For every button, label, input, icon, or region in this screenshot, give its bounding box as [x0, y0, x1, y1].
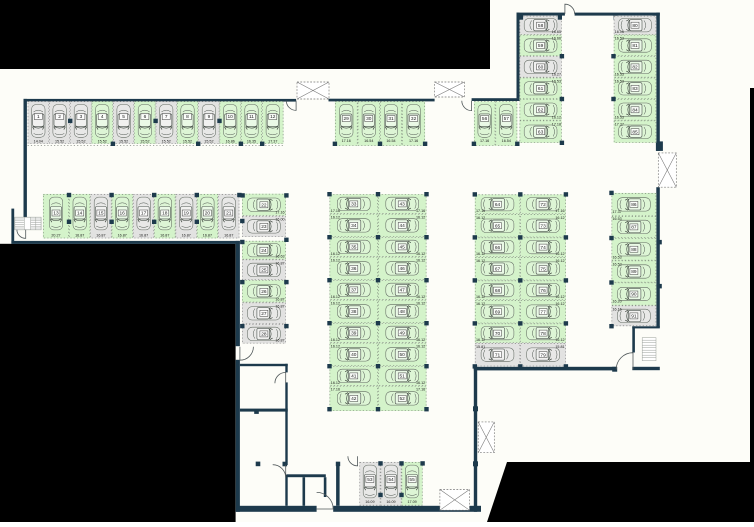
svg-text:53: 53: [367, 477, 373, 483]
svg-text:87: 87: [631, 225, 637, 231]
svg-text:16.87: 16.87: [96, 234, 105, 238]
svg-text:16.12: 16.12: [331, 302, 340, 306]
svg-text:17.18: 17.18: [552, 123, 561, 127]
svg-text:16.53: 16.53: [615, 73, 624, 77]
svg-text:70: 70: [495, 331, 501, 337]
svg-text:19: 19: [184, 211, 190, 217]
svg-text:20: 20: [205, 211, 211, 217]
svg-text:82: 82: [632, 65, 638, 71]
svg-text:35: 35: [351, 245, 357, 251]
svg-text:42: 42: [351, 396, 357, 402]
svg-text:16.35: 16.35: [247, 140, 256, 144]
svg-text:17.16: 17.16: [409, 139, 418, 143]
svg-text:10: 10: [228, 114, 234, 120]
svg-text:16: 16: [120, 211, 126, 217]
svg-text:17.16: 17.16: [476, 209, 485, 213]
svg-text:16.12: 16.12: [555, 216, 564, 220]
svg-text:16.87: 16.87: [224, 234, 233, 238]
svg-text:15.52: 15.52: [183, 140, 192, 144]
svg-text:16.66: 16.66: [552, 37, 561, 41]
svg-text:56: 56: [482, 116, 488, 122]
svg-text:16.63: 16.63: [275, 254, 284, 258]
svg-text:13: 13: [53, 211, 59, 217]
svg-text:39: 39: [351, 331, 357, 337]
svg-text:27: 27: [261, 311, 267, 317]
svg-text:16.12: 16.12: [555, 338, 564, 342]
svg-text:84: 84: [632, 108, 638, 114]
svg-text:16.12: 16.12: [416, 252, 425, 256]
svg-text:9: 9: [208, 114, 211, 120]
svg-text:32: 32: [411, 116, 417, 122]
svg-text:15.52: 15.52: [119, 140, 128, 144]
svg-text:16.53: 16.53: [615, 116, 624, 120]
svg-text:23: 23: [261, 224, 267, 230]
svg-text:65: 65: [495, 223, 501, 229]
svg-text:5: 5: [122, 114, 125, 120]
svg-text:83: 83: [632, 86, 638, 92]
svg-text:17.16: 17.16: [331, 388, 340, 392]
svg-text:68: 68: [495, 288, 501, 294]
svg-text:1: 1: [37, 114, 40, 120]
svg-text:48: 48: [400, 309, 406, 315]
svg-text:16.54: 16.54: [386, 139, 395, 143]
svg-text:16.53: 16.53: [615, 37, 624, 41]
svg-text:58: 58: [538, 23, 544, 29]
svg-text:28: 28: [261, 332, 267, 338]
svg-text:24: 24: [261, 248, 267, 254]
svg-text:16.12: 16.12: [416, 345, 425, 349]
svg-text:61: 61: [538, 86, 544, 92]
svg-text:16.87: 16.87: [160, 234, 169, 238]
svg-text:59: 59: [538, 43, 544, 49]
svg-text:16.00: 16.00: [275, 218, 284, 222]
svg-text:14: 14: [77, 211, 83, 217]
svg-text:16.53: 16.53: [613, 217, 622, 221]
svg-text:16.12: 16.12: [555, 302, 564, 306]
svg-text:17.37: 17.37: [268, 140, 277, 144]
svg-text:15.52: 15.52: [76, 140, 85, 144]
svg-text:16.12: 16.12: [416, 381, 425, 385]
svg-text:16.12: 16.12: [476, 216, 485, 220]
svg-text:16.27: 16.27: [552, 73, 561, 77]
svg-text:16.12: 16.12: [331, 259, 340, 263]
svg-text:16.09: 16.09: [365, 500, 374, 504]
svg-text:81: 81: [632, 43, 638, 49]
svg-text:62: 62: [538, 108, 544, 114]
svg-text:17.16: 17.16: [275, 211, 284, 215]
svg-text:16.12: 16.12: [416, 216, 425, 220]
svg-text:16.65: 16.65: [552, 30, 561, 34]
svg-text:17.16: 17.16: [480, 139, 489, 143]
svg-text:51: 51: [400, 374, 406, 380]
svg-text:16.53: 16.53: [613, 262, 622, 266]
svg-text:90: 90: [631, 292, 637, 298]
svg-text:15.81: 15.81: [555, 345, 564, 349]
svg-text:43: 43: [400, 202, 406, 208]
svg-text:74: 74: [540, 245, 546, 251]
svg-text:16.87: 16.87: [275, 262, 284, 266]
svg-text:6: 6: [144, 114, 147, 120]
svg-text:16.87: 16.87: [182, 234, 191, 238]
svg-text:66: 66: [495, 245, 501, 251]
svg-text:52: 52: [400, 396, 406, 402]
svg-text:4: 4: [101, 114, 104, 120]
svg-text:3: 3: [80, 114, 83, 120]
svg-text:16.87: 16.87: [275, 304, 284, 308]
svg-text:16.86: 16.86: [226, 140, 235, 144]
svg-text:15.52: 15.52: [204, 140, 213, 144]
svg-text:16.12: 16.12: [416, 259, 425, 263]
svg-text:16.12: 16.12: [555, 295, 564, 299]
svg-text:2: 2: [58, 114, 61, 120]
svg-text:21: 21: [226, 211, 232, 217]
svg-text:7: 7: [165, 114, 168, 120]
svg-text:17.09: 17.09: [407, 500, 416, 504]
svg-text:16.12: 16.12: [331, 338, 340, 342]
svg-text:16.12: 16.12: [331, 216, 340, 220]
svg-text:40: 40: [351, 352, 357, 358]
svg-text:16.12: 16.12: [476, 259, 485, 263]
svg-text:60: 60: [538, 65, 544, 71]
svg-text:16.12: 16.12: [331, 252, 340, 256]
svg-text:69: 69: [495, 309, 501, 315]
svg-text:73: 73: [540, 223, 546, 229]
svg-text:16.87: 16.87: [139, 234, 148, 238]
svg-text:11: 11: [249, 114, 254, 120]
svg-text:16.12: 16.12: [476, 338, 485, 342]
svg-text:16.87: 16.87: [118, 234, 127, 238]
svg-text:17.16: 17.16: [416, 388, 425, 392]
svg-text:78: 78: [540, 331, 546, 337]
svg-text:33: 33: [351, 202, 357, 208]
svg-text:63: 63: [538, 129, 544, 135]
svg-text:15: 15: [98, 211, 104, 217]
svg-text:72: 72: [540, 202, 546, 208]
svg-text:16.12: 16.12: [476, 295, 485, 299]
svg-text:16.20: 16.20: [613, 300, 622, 304]
svg-text:64: 64: [495, 202, 501, 208]
svg-text:76: 76: [540, 288, 546, 294]
svg-text:16.53: 16.53: [613, 256, 622, 260]
svg-text:16.12: 16.12: [555, 252, 564, 256]
svg-text:16.53: 16.53: [552, 80, 561, 84]
svg-text:25: 25: [261, 268, 267, 274]
svg-text:79: 79: [540, 352, 546, 358]
svg-text:16.09: 16.09: [386, 500, 395, 504]
svg-text:16.87: 16.87: [275, 297, 284, 301]
svg-text:16.12: 16.12: [552, 116, 561, 120]
svg-text:46: 46: [400, 266, 406, 272]
svg-text:16.87: 16.87: [203, 234, 212, 238]
svg-text:26: 26: [261, 289, 267, 295]
svg-text:12: 12: [270, 114, 276, 120]
svg-text:67: 67: [495, 266, 501, 272]
svg-text:80: 80: [632, 23, 638, 29]
svg-text:36: 36: [351, 266, 357, 272]
svg-text:16.12: 16.12: [331, 381, 340, 385]
svg-text:16.12: 16.12: [555, 259, 564, 263]
svg-text:17: 17: [141, 211, 147, 217]
svg-text:44: 44: [400, 223, 406, 229]
svg-text:85: 85: [632, 129, 638, 135]
svg-text:41: 41: [351, 374, 357, 380]
svg-text:54: 54: [388, 477, 394, 483]
svg-text:15.81: 15.81: [476, 345, 485, 349]
svg-text:15.52: 15.52: [55, 140, 64, 144]
svg-text:16.12: 16.12: [476, 252, 485, 256]
svg-text:16.54: 16.54: [364, 139, 373, 143]
svg-text:16.87: 16.87: [275, 338, 284, 342]
svg-text:17.16: 17.16: [416, 209, 425, 213]
svg-text:16.87: 16.87: [75, 234, 84, 238]
svg-text:16.53: 16.53: [615, 80, 624, 84]
svg-text:30: 30: [366, 116, 372, 122]
svg-text:77: 77: [540, 309, 546, 315]
svg-text:55: 55: [409, 477, 415, 483]
svg-text:8: 8: [186, 114, 189, 120]
svg-text:14.04: 14.04: [34, 140, 43, 144]
svg-text:37: 37: [351, 288, 357, 294]
svg-text:16.12: 16.12: [331, 345, 340, 349]
svg-text:17.16: 17.16: [342, 139, 351, 143]
svg-text:15.52: 15.52: [98, 140, 107, 144]
svg-text:86: 86: [631, 202, 637, 208]
svg-text:17.16: 17.16: [555, 209, 564, 213]
svg-text:89: 89: [631, 269, 637, 275]
svg-text:57: 57: [504, 116, 510, 122]
svg-text:45: 45: [400, 245, 406, 251]
svg-text:15.52: 15.52: [162, 140, 171, 144]
svg-text:16.12: 16.12: [416, 338, 425, 342]
svg-text:31: 31: [388, 116, 394, 122]
svg-text:18: 18: [162, 211, 168, 217]
svg-text:16.12: 16.12: [331, 295, 340, 299]
svg-text:16.12: 16.12: [476, 302, 485, 306]
svg-text:15.52: 15.52: [140, 140, 149, 144]
svg-text:88: 88: [631, 247, 637, 253]
svg-text:17.37: 17.37: [615, 123, 624, 127]
svg-text:38: 38: [351, 309, 357, 315]
svg-text:16.12: 16.12: [416, 295, 425, 299]
svg-text:29: 29: [344, 116, 350, 122]
svg-text:16.12: 16.12: [416, 302, 425, 306]
svg-text:91: 91: [631, 314, 637, 320]
svg-text:17.37: 17.37: [613, 210, 622, 214]
svg-text:75: 75: [540, 266, 546, 272]
svg-text:16.16: 16.16: [613, 307, 622, 311]
svg-text:34: 34: [351, 223, 357, 229]
svg-text:47: 47: [400, 288, 406, 294]
svg-text:22: 22: [261, 202, 267, 208]
svg-text:49: 49: [400, 331, 406, 337]
svg-text:20.27: 20.27: [51, 234, 60, 238]
svg-text:71: 71: [495, 352, 501, 358]
svg-text:16.54: 16.54: [502, 139, 511, 143]
svg-text:17.16: 17.16: [331, 209, 340, 213]
svg-text:16.15: 16.15: [615, 30, 624, 34]
svg-text:50: 50: [400, 352, 406, 358]
